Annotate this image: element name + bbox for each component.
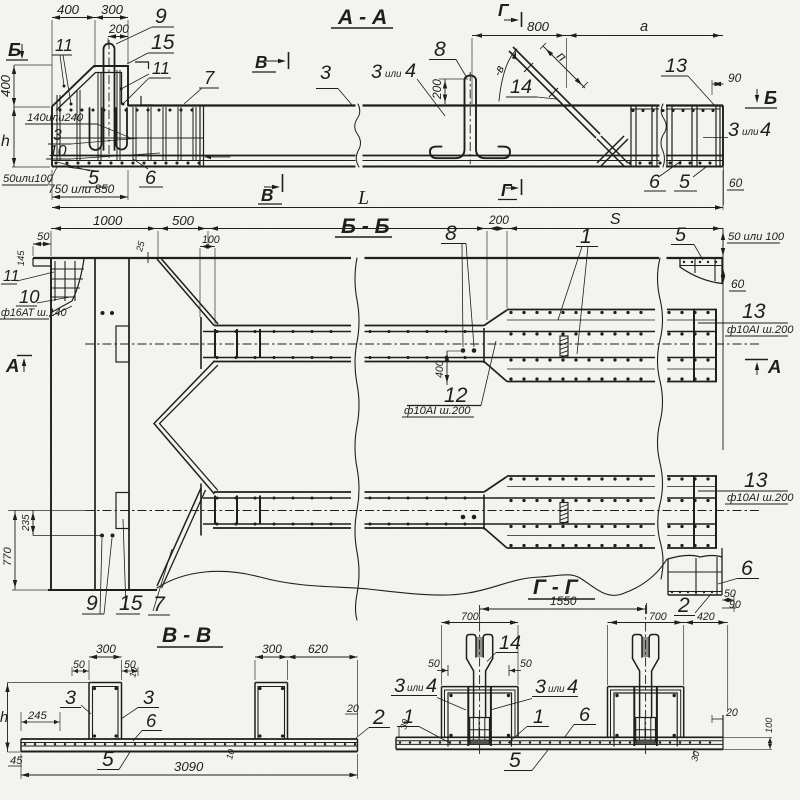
svg-text:9: 9 [86,592,98,615]
svg-text:3: 3 [394,675,405,697]
svg-text:15: 15 [151,31,175,54]
svg-text:10: 10 [19,286,40,307]
svg-text:245: 245 [27,710,47,722]
svg-text:3: 3 [143,687,154,709]
svg-text:50: 50 [520,658,532,670]
svg-text:1: 1 [533,706,544,728]
svg-text:770: 770 [2,547,14,566]
svg-text:420: 420 [697,611,715,623]
svg-text:ф10АΙ ш.200: ф10АΙ ш.200 [404,405,471,417]
svg-text:или: или [407,683,424,694]
svg-text:В: В [261,185,273,205]
svg-text:13: 13 [742,300,766,323]
svg-text:700: 700 [461,611,479,623]
svg-text:750 или 850: 750 или 850 [48,182,115,196]
svg-text:или: или [742,127,759,138]
svg-text:15: 15 [119,592,143,615]
svg-text:4: 4 [426,675,437,697]
svg-text:5: 5 [679,171,691,193]
svg-text:400: 400 [434,360,446,378]
svg-text:6: 6 [649,171,660,193]
svg-text:100: 100 [764,717,774,733]
svg-text:11: 11 [3,268,19,285]
svg-text:400: 400 [57,2,80,17]
svg-text:200: 200 [430,79,444,100]
svg-text:10: 10 [49,143,67,160]
svg-text:4: 4 [760,119,771,141]
svg-text:9: 9 [155,5,167,28]
svg-text:200: 200 [108,22,129,36]
svg-text:2: 2 [677,594,690,617]
svg-text:300: 300 [101,2,124,17]
svg-text:2: 2 [372,706,385,729]
svg-text:или: или [385,69,402,80]
svg-text:ф10АΙ ш.200: ф10АΙ ш.200 [727,492,794,504]
svg-text:100: 100 [202,234,220,246]
svg-text:12: 12 [444,384,468,407]
svg-text:8: 8 [434,38,446,61]
svg-text:11: 11 [152,58,170,78]
svg-text:ф10АΙ ш.200: ф10АΙ ш.200 [727,324,794,336]
svg-text:L: L [357,187,369,209]
svg-text:235: 235 [21,514,32,532]
svg-text:500: 500 [172,213,195,228]
svg-text:или: или [548,684,565,695]
svg-text:400: 400 [0,74,13,97]
svg-text:3: 3 [535,676,546,698]
svg-text:14: 14 [499,632,521,654]
svg-text:Г: Г [498,0,510,20]
svg-text:3: 3 [65,687,76,709]
svg-text:6: 6 [741,557,753,580]
svg-text:3: 3 [320,62,331,84]
svg-text:7: 7 [204,67,215,88]
svg-text:4: 4 [405,60,416,82]
svg-text:145: 145 [16,250,26,266]
svg-text:h: h [0,710,8,726]
svg-text:1550: 1550 [550,594,577,608]
svg-text:300: 300 [262,642,282,656]
svg-text:6: 6 [146,710,157,731]
svg-text:620: 620 [308,642,328,656]
svg-text:13: 13 [665,55,687,77]
svg-text:50или100: 50или100 [3,173,54,185]
svg-text:60: 60 [731,277,745,291]
svg-text:а: а [640,19,648,35]
svg-text:А: А [767,356,781,377]
svg-text:200: 200 [488,213,509,227]
svg-text:Б: Б [8,39,21,60]
svg-text:h: h [1,133,10,150]
svg-text:14: 14 [510,76,532,98]
svg-text:11: 11 [55,35,73,55]
svg-text:В: В [255,52,267,72]
svg-text:1: 1 [580,225,592,248]
svg-text:А - А: А - А [337,6,387,29]
svg-text:Б - Б: Б - Б [341,215,390,238]
svg-text:S: S [610,211,621,228]
svg-text:800: 800 [527,19,550,34]
svg-text:8: 8 [445,222,457,245]
svg-text:50: 50 [37,231,50,243]
svg-text:6: 6 [145,167,156,189]
svg-text:В - В: В - В [162,624,211,647]
svg-text:50 или 100: 50 или 100 [728,231,785,243]
svg-text:700: 700 [649,611,667,623]
svg-text:5: 5 [102,748,114,771]
svg-text:60: 60 [729,176,743,190]
svg-text:20: 20 [346,703,359,715]
svg-text:6: 6 [579,704,590,726]
svg-text:Б: Б [764,87,777,108]
svg-text:А: А [5,355,19,376]
svg-text:300: 300 [96,642,116,656]
svg-text:3: 3 [53,127,62,144]
svg-text:3090: 3090 [174,759,204,774]
svg-text:3: 3 [728,119,739,141]
svg-text:90: 90 [728,71,742,85]
svg-text:5: 5 [509,749,521,772]
svg-text:5: 5 [675,224,687,246]
svg-text:13: 13 [744,469,768,492]
svg-text:1000: 1000 [93,213,123,228]
svg-text:50: 50 [73,659,85,671]
svg-text:20: 20 [725,707,738,719]
svg-text:3: 3 [371,61,382,83]
svg-text:4: 4 [567,676,578,698]
svg-text:140или240: 140или240 [27,112,84,124]
svg-text:50: 50 [428,658,440,670]
